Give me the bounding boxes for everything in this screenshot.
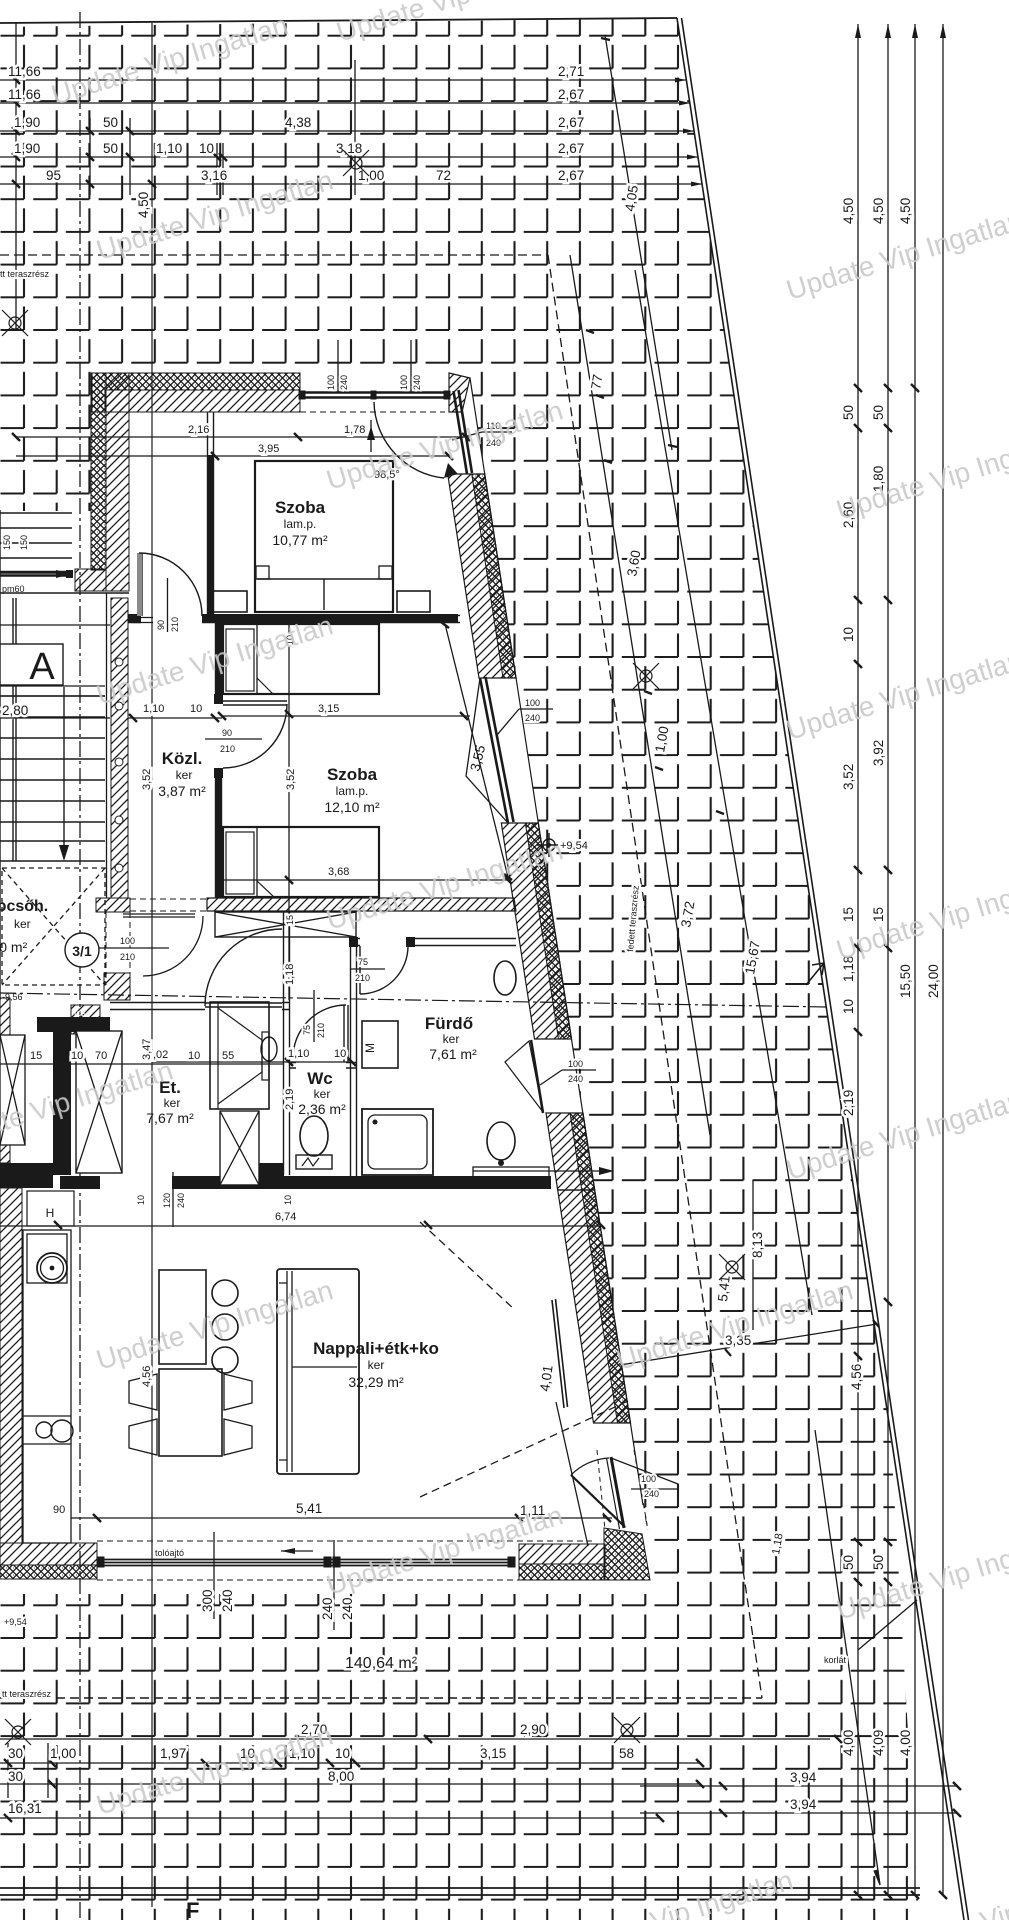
svg-text:3,47: 3,47 bbox=[141, 1039, 153, 1060]
svg-text:4,09: 4,09 bbox=[871, 1730, 886, 1756]
svg-text:10: 10 bbox=[190, 703, 202, 715]
svg-text:2,36 m²: 2,36 m² bbox=[298, 1101, 346, 1117]
svg-text:70: 70 bbox=[95, 1050, 107, 1062]
svg-text:100: 100 bbox=[120, 936, 135, 946]
svg-text:72: 72 bbox=[436, 168, 451, 183]
svg-text:210: 210 bbox=[120, 952, 135, 962]
svg-text:15,50: 15,50 bbox=[898, 964, 913, 998]
svg-text:240: 240 bbox=[320, 1597, 335, 1620]
svg-text:10: 10 bbox=[71, 1050, 83, 1062]
svg-text:240: 240 bbox=[220, 1589, 235, 1612]
svg-text:210: 210 bbox=[316, 1023, 326, 1038]
svg-text:5,41: 5,41 bbox=[715, 1275, 733, 1303]
svg-text:4,56: 4,56 bbox=[849, 1364, 864, 1390]
svg-text:ker: ker bbox=[443, 1032, 460, 1046]
svg-text:3,52: 3,52 bbox=[841, 764, 856, 790]
svg-text:3,94: 3,94 bbox=[790, 1797, 817, 1812]
svg-text:1,90: 1,90 bbox=[14, 141, 40, 156]
svg-text:240: 240 bbox=[340, 1597, 355, 1620]
svg-text:240: 240 bbox=[176, 1193, 186, 1208]
svg-text:6,74: 6,74 bbox=[275, 1211, 296, 1223]
svg-text:1,10: 1,10 bbox=[288, 1048, 309, 1060]
svg-text:Szoba: Szoba bbox=[327, 765, 378, 784]
svg-text:90: 90 bbox=[156, 620, 166, 630]
svg-text:11,66: 11,66 bbox=[8, 64, 41, 79]
svg-text:140,64 m²: 140,64 m² bbox=[345, 1655, 418, 1672]
svg-text:ker: ker bbox=[14, 917, 31, 931]
svg-text:4,50: 4,50 bbox=[841, 198, 856, 224]
svg-text:90: 90 bbox=[222, 728, 232, 738]
svg-text:3,52: 3,52 bbox=[285, 769, 297, 790]
svg-text:ker: ker bbox=[368, 1358, 385, 1372]
svg-text:3/1: 3/1 bbox=[72, 943, 92, 959]
svg-text:M: M bbox=[363, 1043, 377, 1053]
svg-text:50: 50 bbox=[103, 115, 118, 130]
svg-text:7,61 m²: 7,61 m² bbox=[429, 1046, 477, 1062]
svg-text:2,67: 2,67 bbox=[558, 168, 584, 183]
svg-text:+9,54: +9,54 bbox=[4, 1617, 27, 1627]
svg-text:3,15: 3,15 bbox=[318, 703, 339, 715]
svg-text:120: 120 bbox=[162, 1193, 172, 1208]
svg-text:11,66: 11,66 bbox=[8, 87, 41, 102]
svg-text:150: 150 bbox=[19, 535, 29, 550]
svg-text:2,90: 2,90 bbox=[520, 1722, 546, 1737]
svg-text:ker: ker bbox=[164, 1096, 181, 1110]
svg-text:korlát: korlát bbox=[824, 1655, 847, 1665]
svg-text:4,50: 4,50 bbox=[898, 198, 913, 224]
svg-text:2,80: 2,80 bbox=[2, 703, 28, 718]
svg-text:10: 10 bbox=[335, 1746, 350, 1761]
svg-text:3,92: 3,92 bbox=[871, 740, 886, 766]
svg-text:4,56: 4,56 bbox=[141, 1366, 153, 1387]
svg-text:3,95: 3,95 bbox=[258, 443, 279, 455]
svg-text:2,67: 2,67 bbox=[558, 87, 584, 102]
svg-text:Közl.: Közl. bbox=[162, 749, 203, 768]
svg-text:tt teraszrész: tt teraszrész bbox=[2, 1689, 52, 1699]
svg-text:ker: ker bbox=[176, 768, 193, 782]
svg-text:12,10 m²: 12,10 m² bbox=[324, 799, 380, 815]
svg-text:100: 100 bbox=[326, 375, 336, 390]
svg-text:1,18: 1,18 bbox=[284, 964, 296, 985]
svg-text:2,19: 2,19 bbox=[284, 1089, 296, 1110]
svg-text:10: 10 bbox=[283, 1195, 293, 1205]
svg-text:2,67: 2,67 bbox=[558, 115, 584, 130]
svg-text:Fürdő: Fürdő bbox=[425, 1014, 473, 1033]
svg-text:2,67: 2,67 bbox=[558, 141, 584, 156]
svg-text:Wc: Wc bbox=[307, 1069, 333, 1088]
svg-text:pm60: pm60 bbox=[2, 584, 25, 594]
svg-text:30: 30 bbox=[8, 1769, 23, 1784]
svg-text:10: 10 bbox=[841, 999, 856, 1014]
svg-text:10: 10 bbox=[199, 141, 214, 156]
svg-text:210: 210 bbox=[220, 744, 235, 754]
svg-text:50: 50 bbox=[871, 405, 886, 420]
svg-text:12,90 m²: 12,90 m² bbox=[0, 939, 28, 955]
svg-text:10: 10 bbox=[334, 1048, 346, 1060]
svg-text:75: 75 bbox=[302, 1025, 312, 1035]
svg-text:50: 50 bbox=[871, 1555, 886, 1570]
svg-text:95: 95 bbox=[46, 168, 61, 183]
svg-text:3,52: 3,52 bbox=[141, 769, 153, 790]
svg-text:100: 100 bbox=[641, 1474, 656, 1484]
svg-text:3,87 m²: 3,87 m² bbox=[158, 783, 206, 799]
svg-text:100: 100 bbox=[399, 375, 409, 390]
svg-text:240: 240 bbox=[339, 375, 349, 390]
svg-text:1,78: 1,78 bbox=[344, 424, 365, 436]
svg-text:75: 75 bbox=[358, 957, 368, 967]
svg-text:32,29 m²: 32,29 m² bbox=[348, 1374, 404, 1390]
svg-text:50: 50 bbox=[103, 141, 118, 156]
svg-text:1,97: 1,97 bbox=[160, 1746, 186, 1761]
svg-text:4,50: 4,50 bbox=[136, 192, 151, 218]
svg-text:3,18: 3,18 bbox=[336, 141, 362, 156]
svg-text:Lépcsőh.: Lépcsőh. bbox=[0, 898, 48, 915]
svg-text:10: 10 bbox=[841, 627, 856, 642]
svg-text:tt teraszrész: tt teraszrész bbox=[0, 269, 50, 279]
svg-text:-9,56: -9,56 bbox=[2, 992, 23, 1002]
svg-text:3,15: 3,15 bbox=[480, 1746, 506, 1761]
svg-text:tolóajtó: tolóajtó bbox=[155, 1548, 184, 1558]
svg-text:+9,54: +9,54 bbox=[560, 840, 588, 852]
svg-text:2,16: 2,16 bbox=[188, 424, 209, 436]
svg-text:4,50: 4,50 bbox=[871, 198, 886, 224]
svg-text:240: 240 bbox=[412, 375, 422, 390]
svg-text:100: 100 bbox=[568, 1059, 583, 1069]
svg-text:150: 150 bbox=[2, 535, 12, 550]
svg-text:3,94: 3,94 bbox=[790, 1770, 817, 1785]
svg-text:1,10: 1,10 bbox=[143, 703, 164, 715]
svg-text:lam.p.: lam.p. bbox=[336, 784, 369, 798]
svg-text:240: 240 bbox=[644, 1489, 659, 1499]
svg-text:7,67 m²: 7,67 m² bbox=[146, 1110, 194, 1126]
svg-text:15: 15 bbox=[30, 1050, 42, 1062]
svg-text:8,00: 8,00 bbox=[328, 1769, 354, 1784]
svg-text:4,38: 4,38 bbox=[285, 115, 311, 130]
svg-text:F: F bbox=[186, 1898, 199, 1920]
svg-text:3,16: 3,16 bbox=[201, 168, 227, 183]
svg-text:1,10: 1,10 bbox=[156, 141, 182, 156]
svg-text:ker: ker bbox=[314, 1087, 331, 1101]
svg-text:90: 90 bbox=[53, 1504, 65, 1516]
svg-text:2,19: 2,19 bbox=[841, 1090, 856, 1116]
svg-text:30: 30 bbox=[8, 1746, 23, 1761]
svg-text:8,13: 8,13 bbox=[750, 1232, 765, 1258]
svg-text:50: 50 bbox=[841, 1555, 856, 1570]
svg-text:240: 240 bbox=[525, 713, 540, 723]
svg-text:58: 58 bbox=[619, 1746, 634, 1761]
svg-text:210: 210 bbox=[170, 617, 180, 632]
svg-text:1,00: 1,00 bbox=[358, 168, 384, 183]
svg-text:2,71: 2,71 bbox=[558, 64, 584, 79]
svg-text:1,90: 1,90 bbox=[14, 115, 40, 130]
svg-text:240: 240 bbox=[568, 1074, 583, 1084]
svg-text:100: 100 bbox=[525, 698, 540, 708]
svg-text:10: 10 bbox=[188, 1050, 200, 1062]
svg-text:H: H bbox=[46, 1206, 55, 1220]
svg-text:210: 210 bbox=[355, 973, 370, 983]
svg-text:24,00: 24,00 bbox=[926, 964, 941, 998]
svg-text:Szoba: Szoba bbox=[275, 498, 326, 517]
svg-text:300: 300 bbox=[200, 1589, 215, 1612]
svg-text:50: 50 bbox=[841, 405, 856, 420]
svg-text:1,00: 1,00 bbox=[50, 1746, 76, 1761]
svg-text:3,68: 3,68 bbox=[328, 866, 349, 878]
svg-text:15: 15 bbox=[285, 915, 295, 925]
svg-text:15: 15 bbox=[841, 907, 856, 922]
svg-text:lam.p.: lam.p. bbox=[284, 517, 317, 531]
svg-text:5,41: 5,41 bbox=[296, 1501, 322, 1516]
svg-text:10,77 m²: 10,77 m² bbox=[272, 532, 328, 548]
svg-text:Nappali+étk+ko: Nappali+étk+ko bbox=[313, 1339, 439, 1358]
svg-text:4,00: 4,00 bbox=[841, 1730, 856, 1756]
svg-text:10: 10 bbox=[136, 1195, 146, 1205]
svg-text:77: 77 bbox=[588, 373, 605, 390]
svg-text:fcs: fcs bbox=[74, 1008, 86, 1018]
svg-text:A: A bbox=[29, 646, 55, 688]
svg-text:16,31: 16,31 bbox=[8, 1801, 42, 1816]
svg-text:55: 55 bbox=[222, 1050, 234, 1062]
svg-text:4,00: 4,00 bbox=[898, 1730, 913, 1756]
